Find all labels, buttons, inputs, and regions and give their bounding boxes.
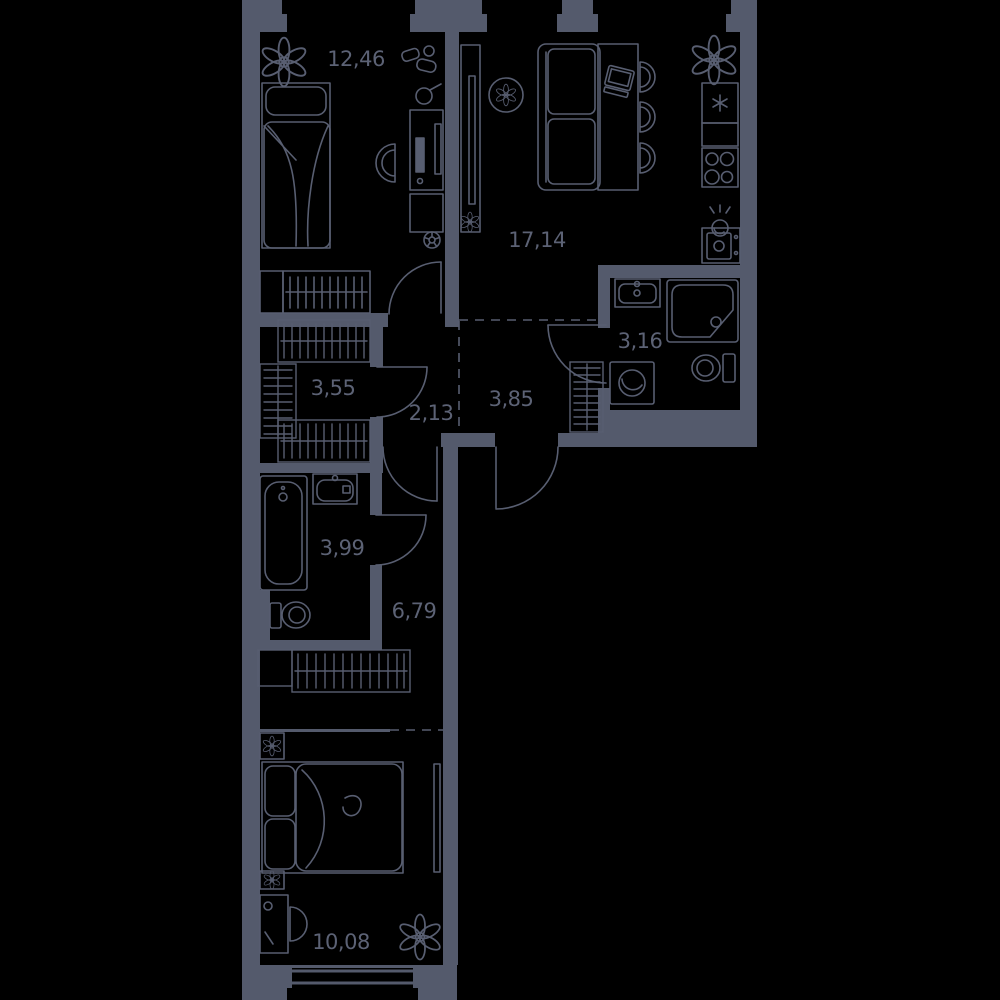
- area-label-kitchen-living: 17,14: [508, 228, 566, 252]
- area-label-bedroom-lower: 10,08: [312, 930, 370, 954]
- clothes-rack-top-icon: [278, 320, 370, 362]
- area-label-hall-inner: 2,13: [409, 401, 454, 425]
- area-label-corridor: 6,79: [392, 599, 437, 623]
- area-label-bathroom-small: 3,16: [618, 329, 663, 353]
- background: [0, 0, 1000, 1000]
- area-label-walk-in-closet: 3,55: [311, 376, 356, 400]
- clothes-rack-bottom-icon: [278, 420, 370, 462]
- area-label-bedroom-upper: 12,46: [327, 47, 385, 71]
- keyboard-icon: [416, 138, 424, 172]
- floor-plan: 12,46 17,14 3,16 3,55 2,13 3,85 3,99 6,7…: [0, 0, 1000, 1000]
- area-label-bathroom-large: 3,99: [320, 536, 365, 560]
- floor-plan-page: 12,46 17,14 3,16 3,55 2,13 3,85 3,99 6,7…: [0, 0, 1000, 1000]
- area-label-entrance-hall: 3,85: [489, 387, 534, 411]
